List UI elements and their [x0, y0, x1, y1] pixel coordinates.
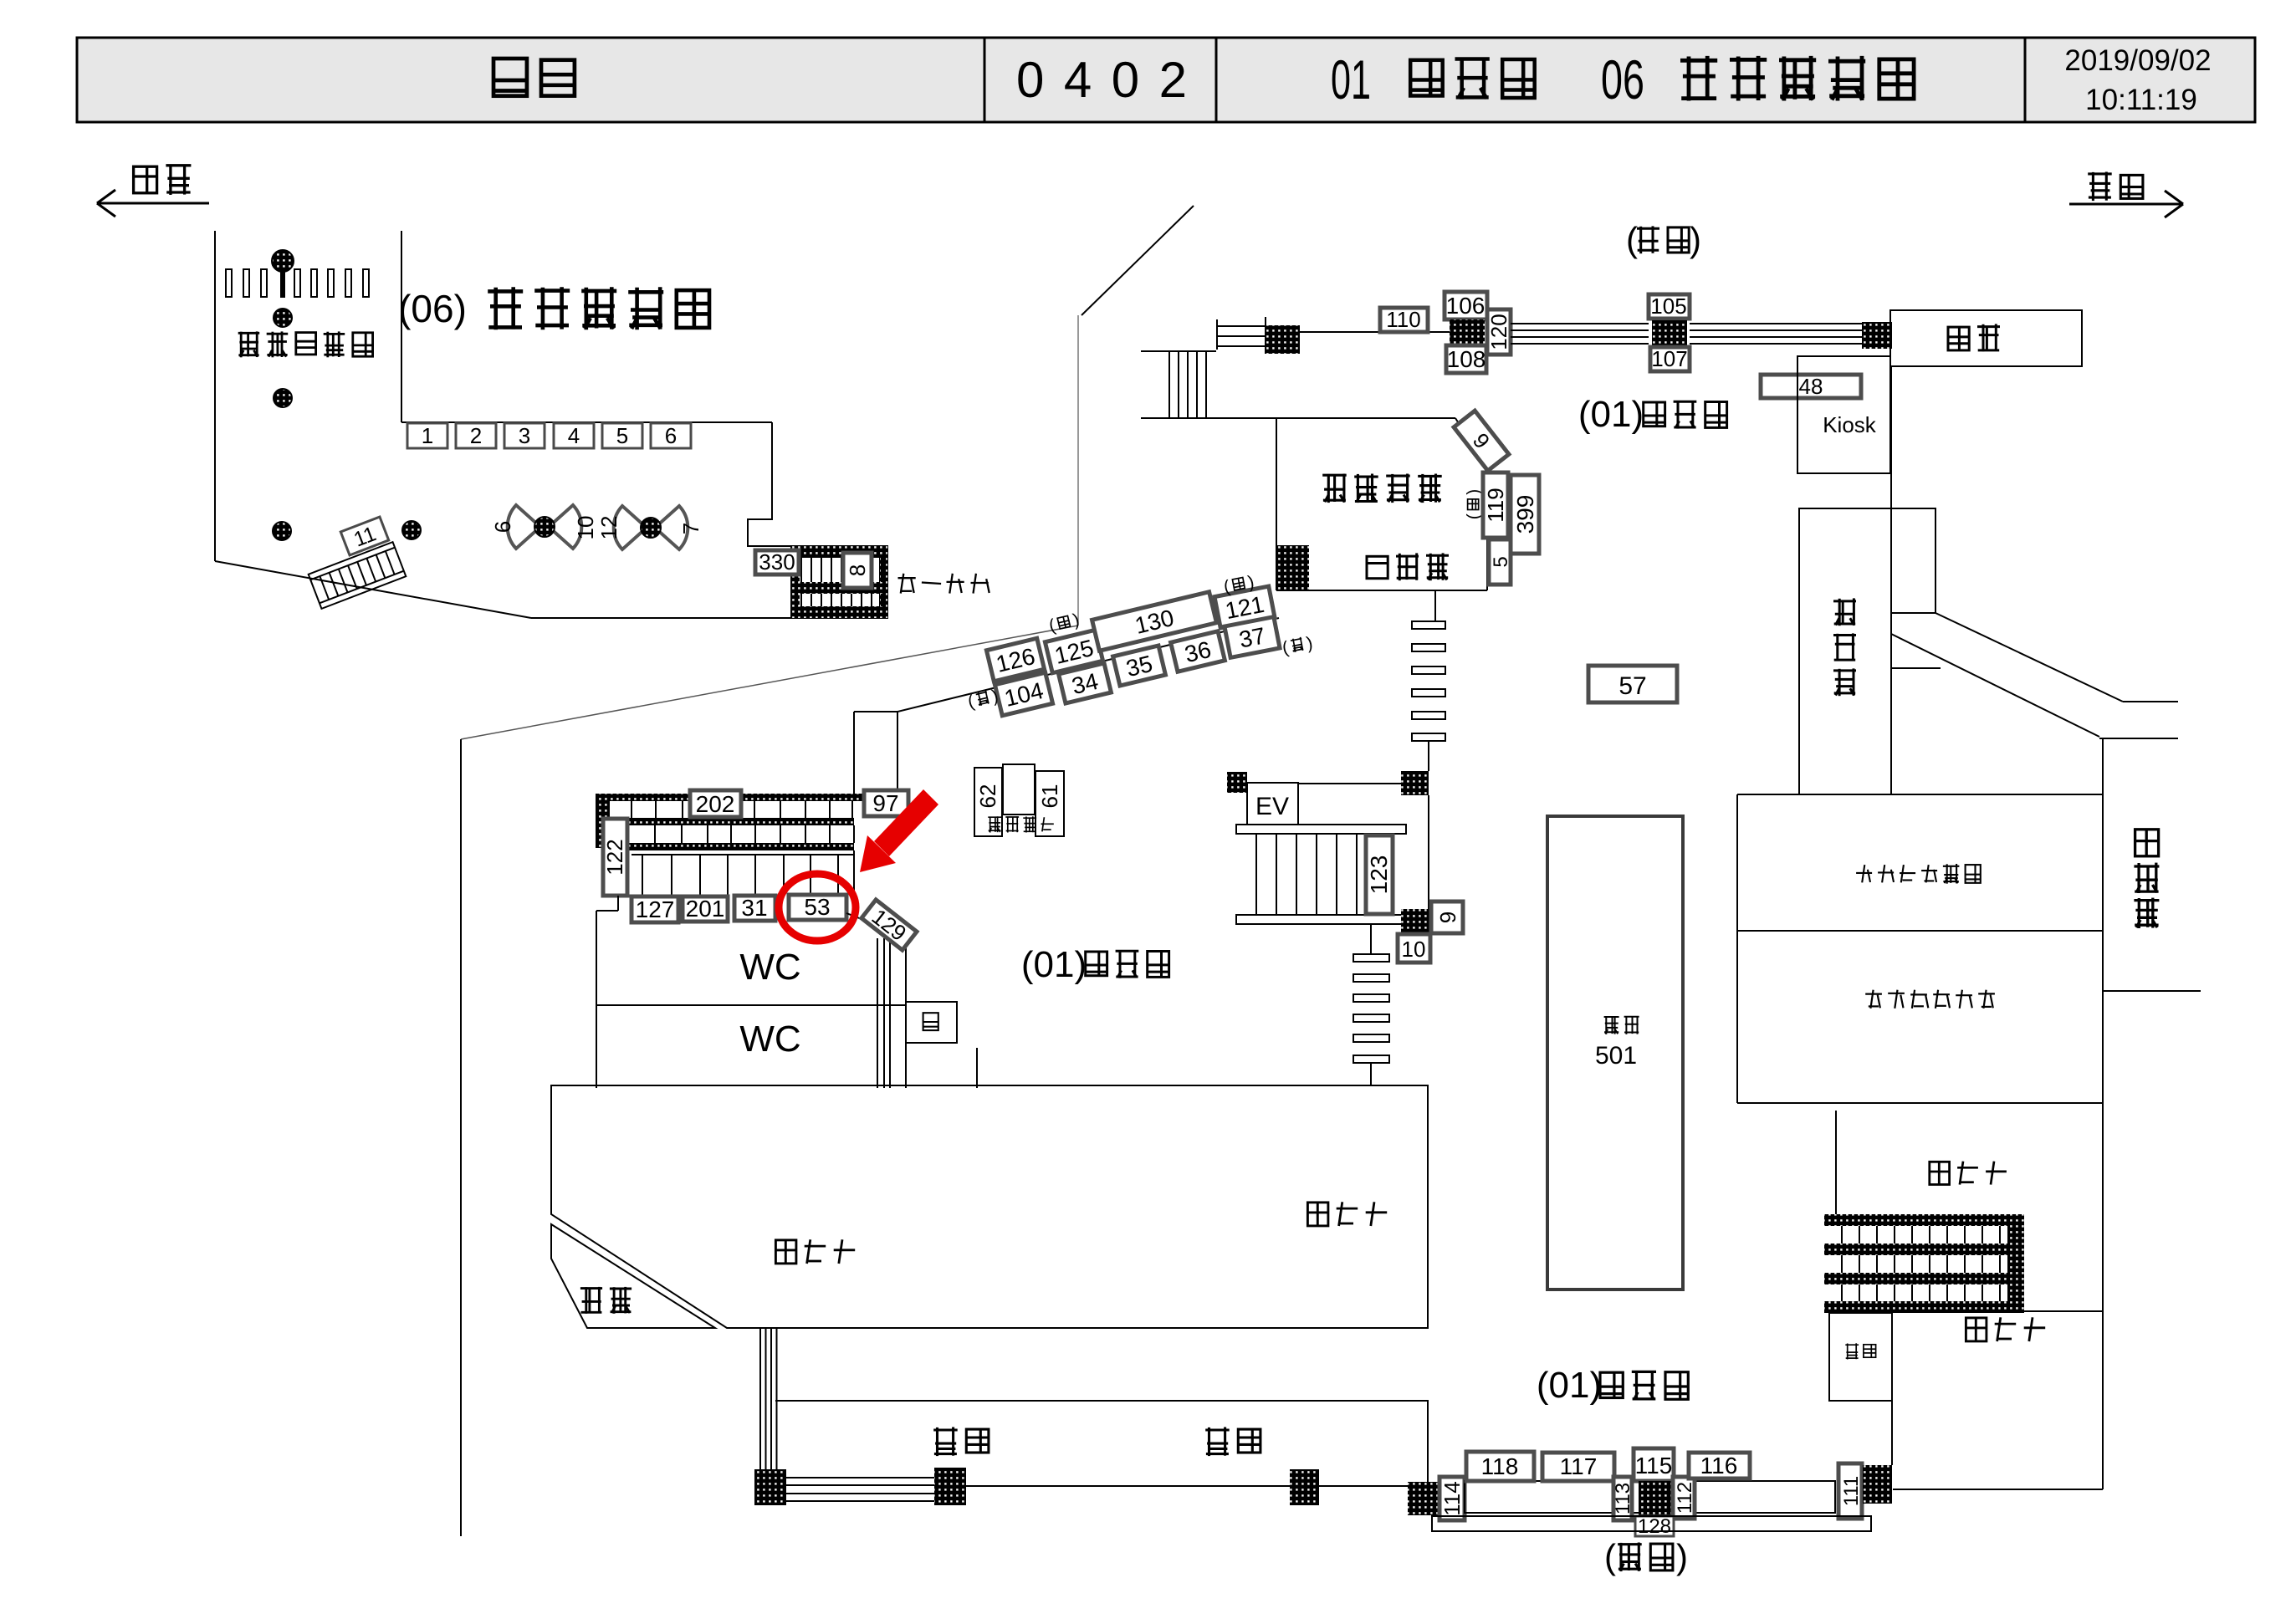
svg-text:(: ( [1626, 220, 1638, 259]
svg-text:105: 105 [1650, 294, 1686, 319]
svg-text:108: 108 [1447, 346, 1486, 372]
svg-text:4: 4 [568, 423, 580, 448]
svg-text:501: 501 [1595, 1042, 1637, 1070]
svg-text:97: 97 [872, 790, 898, 816]
svg-text:106: 106 [1446, 293, 1485, 319]
svg-text:117: 117 [1560, 1453, 1598, 1479]
svg-text:53: 53 [804, 894, 830, 920]
svg-text:(: ( [1465, 513, 1484, 519]
svg-text:48: 48 [1799, 374, 1823, 399]
svg-text:): ) [1690, 220, 1701, 259]
svg-text:37: 37 [1237, 622, 1267, 652]
svg-text:12: 12 [596, 516, 621, 540]
svg-text:201: 201 [686, 896, 725, 922]
svg-text:111: 111 [1840, 1476, 1863, 1506]
svg-text:9: 9 [1435, 912, 1460, 923]
svg-text:202: 202 [696, 791, 735, 817]
svg-text:62: 62 [975, 784, 1000, 809]
svg-text:EV: EV [1255, 793, 1289, 820]
svg-text:330: 330 [759, 549, 795, 575]
svg-text:113: 113 [1612, 1483, 1634, 1514]
svg-text:127: 127 [636, 896, 675, 922]
svg-text:112: 112 [1674, 1482, 1696, 1514]
svg-text:128: 128 [1638, 1515, 1671, 1538]
svg-text:115: 115 [1635, 1453, 1673, 1478]
svg-text:122: 122 [602, 839, 627, 875]
svg-text:118: 118 [1481, 1453, 1519, 1479]
svg-text:57: 57 [1618, 672, 1646, 700]
svg-text:6: 6 [490, 521, 515, 533]
svg-text:(01): (01) [1578, 394, 1644, 435]
svg-text:WC: WC [739, 1019, 800, 1060]
svg-text:(: ( [1604, 1537, 1616, 1576]
svg-text:3: 3 [519, 423, 530, 448]
svg-text:107: 107 [1651, 346, 1687, 371]
svg-text:(01): (01) [1021, 944, 1087, 985]
svg-text:8: 8 [845, 564, 870, 576]
svg-text:10: 10 [1402, 937, 1426, 962]
svg-text:119: 119 [1483, 488, 1508, 522]
svg-text:Kiosk: Kiosk [1823, 412, 1877, 437]
svg-text:WC: WC [739, 947, 800, 988]
svg-text:399: 399 [1512, 495, 1538, 534]
svg-text:123: 123 [1366, 855, 1392, 895]
svg-text:2: 2 [470, 423, 482, 448]
svg-text:01: 01 [1331, 49, 1371, 110]
svg-text:(06): (06) [398, 287, 467, 330]
svg-text:): ) [1676, 1537, 1688, 1576]
svg-text:116: 116 [1700, 1453, 1738, 1478]
svg-text:5: 5 [616, 423, 628, 448]
svg-text:5: 5 [1490, 556, 1512, 567]
svg-text:06: 06 [1601, 49, 1644, 110]
svg-text:114: 114 [1439, 1481, 1465, 1515]
svg-text:2019/09/02: 2019/09/02 [2064, 44, 2211, 77]
svg-text:): ) [1465, 489, 1484, 495]
svg-text:1: 1 [422, 423, 433, 448]
svg-text:10: 10 [573, 516, 598, 540]
svg-text:6: 6 [665, 423, 677, 448]
svg-text:61: 61 [1037, 784, 1062, 809]
svg-text:31: 31 [741, 895, 767, 921]
svg-text:10:11:19: 10:11:19 [2085, 84, 2197, 116]
svg-text:120: 120 [1486, 314, 1511, 350]
svg-text:7: 7 [678, 523, 703, 534]
svg-text:110: 110 [1386, 307, 1420, 332]
svg-text:(01): (01) [1537, 1365, 1602, 1406]
